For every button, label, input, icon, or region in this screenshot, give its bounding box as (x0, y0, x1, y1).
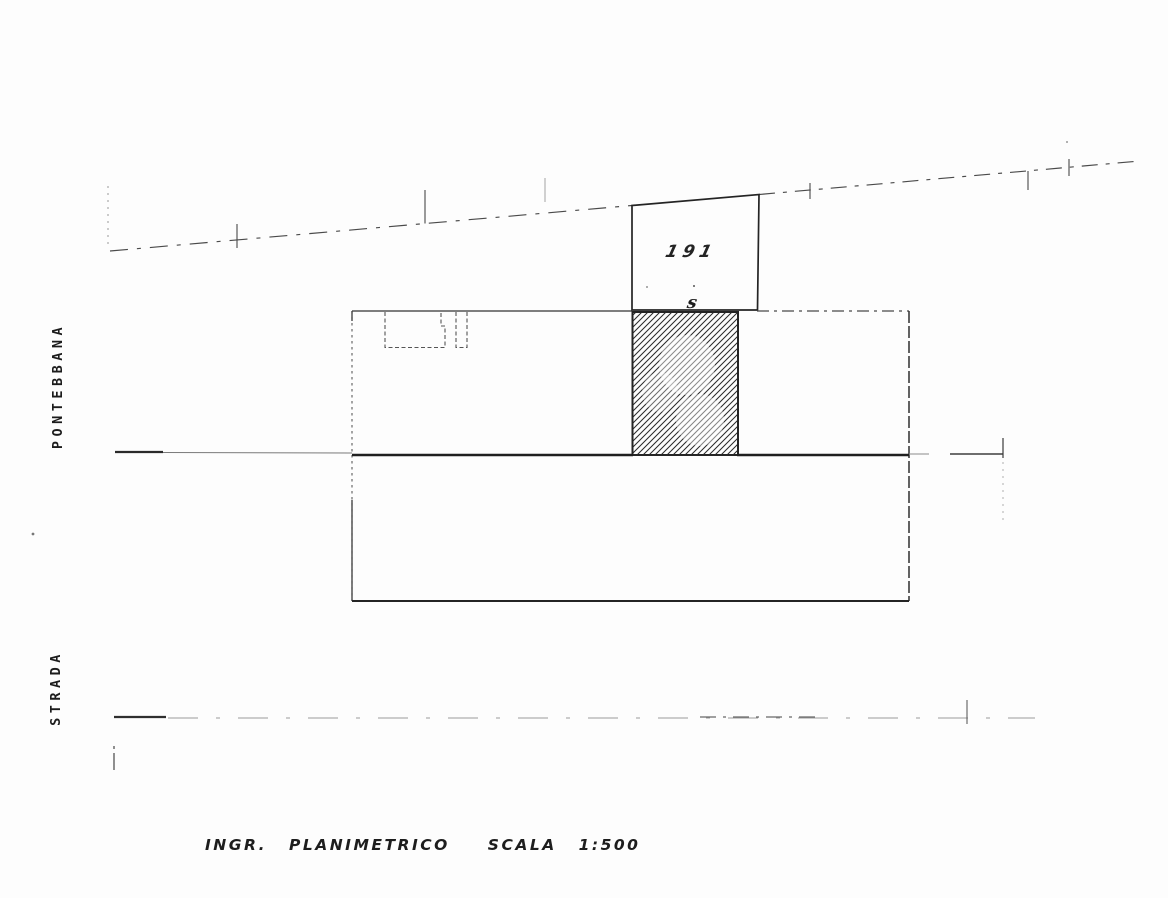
parcel-191-label: 191 (663, 242, 718, 262)
scan-speck (1066, 141, 1068, 143)
boundary-tick-marks (108, 159, 1069, 248)
caption: INGR. PLANIMETRICOSCALA 1:500 (205, 836, 805, 854)
label-pontebbana: PONTEBBANA (50, 323, 66, 449)
annex-outlines (385, 312, 467, 348)
hatched-building-footprint (633, 312, 739, 455)
caption-title: INGR. PLANIMETRICO (205, 836, 450, 854)
label-strada: STRADA (48, 650, 64, 726)
scan-speck (693, 285, 695, 287)
site-plan-drawing (0, 0, 1168, 898)
scan-fade-blotch (642, 372, 678, 412)
scan-specks (32, 141, 1068, 535)
scan-speck (32, 533, 35, 536)
scan-speck (646, 286, 648, 288)
north-boundary-right-segment (759, 161, 1140, 195)
north-boundary-dashed-line (110, 161, 1140, 251)
caption-scale: SCALA 1:500 (488, 836, 641, 854)
annex-a-outline (385, 312, 445, 348)
road-edge-left-thin (163, 453, 352, 454)
scan-fade-blotch (676, 394, 724, 446)
mid-road-edge-line (115, 438, 1003, 520)
annex-b-outline (456, 312, 467, 348)
north-boundary-left-segment (110, 206, 632, 252)
scanned-site-plan-page: PONTEBBANA STRADA 191 s INGR. PLANIMETRI… (0, 0, 1168, 898)
south-road-dashed-line (114, 700, 1035, 772)
